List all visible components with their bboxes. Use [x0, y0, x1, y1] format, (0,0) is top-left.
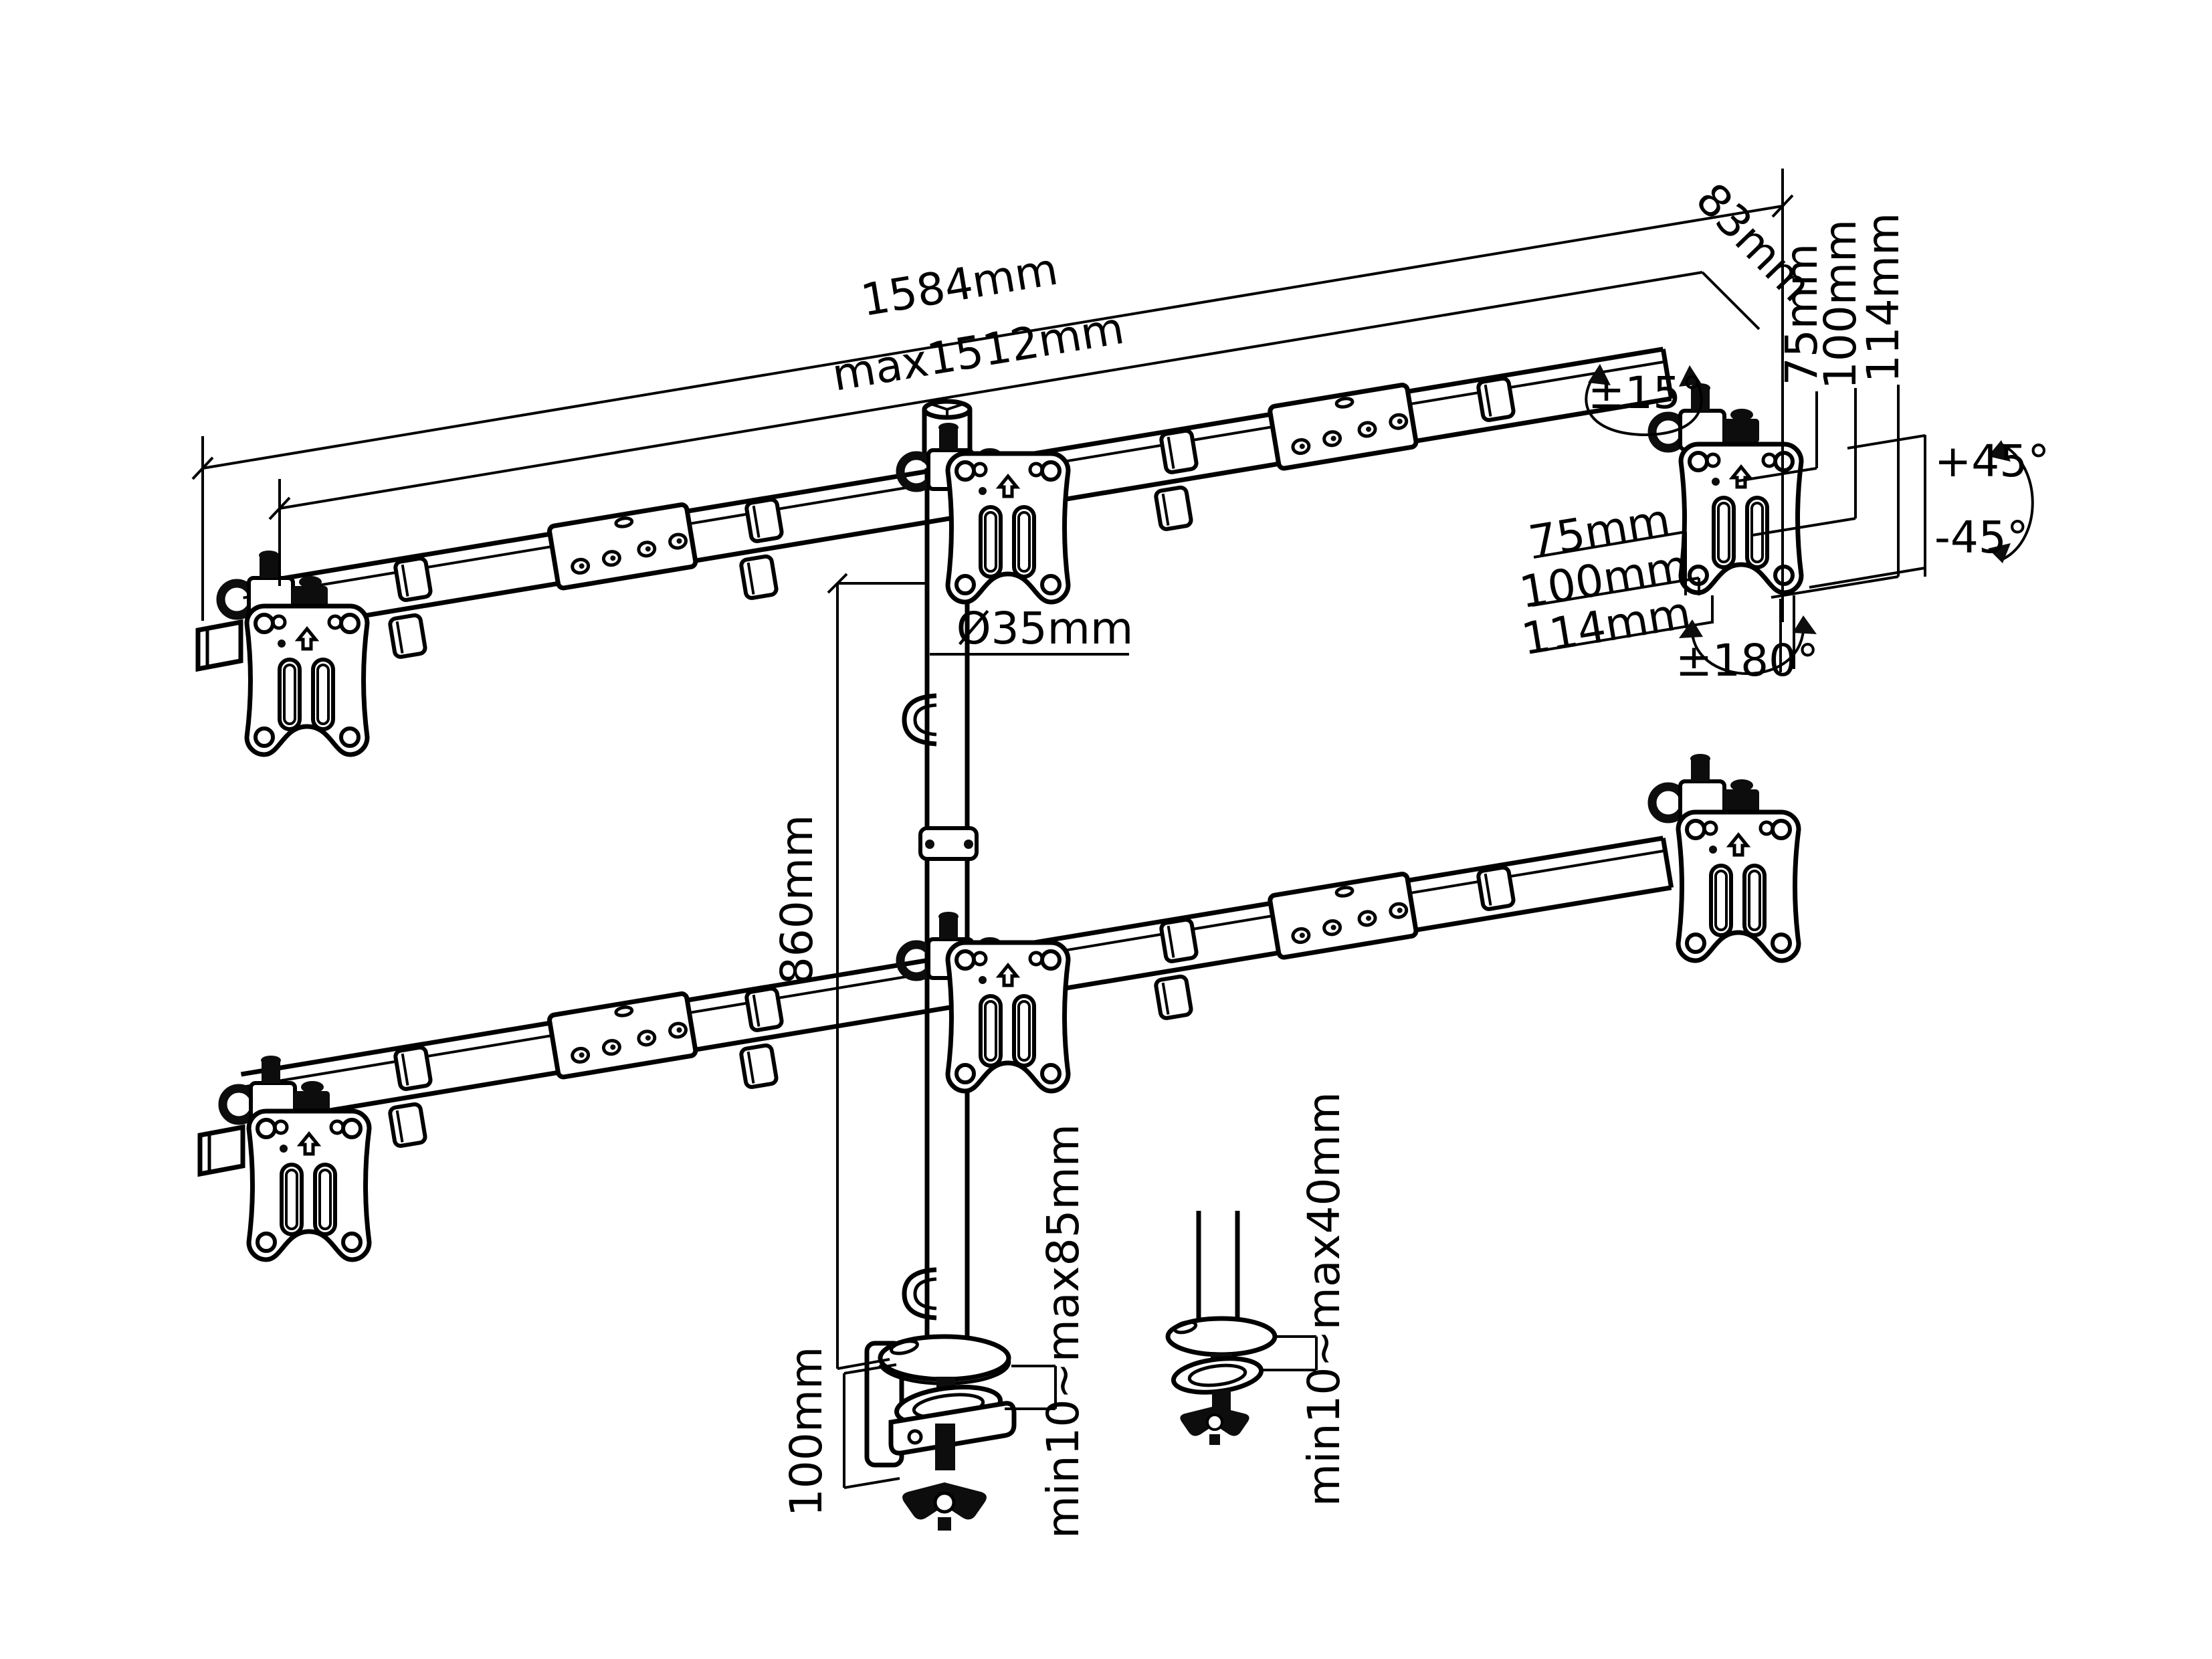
swivel-15-label: ±15°	[1588, 367, 1703, 419]
vesa-plate-bottom-left	[249, 1111, 369, 1260]
vesa-plate-top-left	[247, 606, 367, 755]
vesa-plate-top-center	[948, 454, 1068, 602]
rotation-180-label: ±180°	[1676, 635, 1819, 686]
grommet-mount-detail	[1168, 1211, 1275, 1445]
grommet-desk-range-label: min10~max40mm	[1298, 1092, 1350, 1506]
overall-width-label: 1584mm	[858, 243, 1062, 326]
tilt-down-label: -45°	[1934, 512, 2029, 563]
top-bar-end-cap	[198, 622, 241, 669]
bottom-bar-end-cap	[200, 1127, 243, 1174]
pole-height-label: 860mm	[771, 815, 823, 985]
tilt-up-label: +45°	[1934, 435, 2049, 487]
vesa-plate-bottom-center	[948, 943, 1068, 1091]
clamp-desk-range-label: min10~max85mm	[1037, 1124, 1089, 1539]
technical-drawing-page: 1584mm max1512mm 83mm ±15° 75mm 100mm 11…	[0, 0, 2212, 1659]
vesa-col-114-label: 114mm	[1857, 213, 1909, 383]
clamp-height-label: 100mm	[781, 1347, 832, 1517]
pole-cable-clip	[904, 696, 936, 744]
pole-diameter-label: Ø35mm	[957, 603, 1134, 654]
pole-cable-clip	[904, 1270, 936, 1318]
vesa-plate-bottom-right	[1678, 812, 1799, 961]
monitor-mount-diagram: 1584mm max1512mm 83mm ±15° 75mm 100mm 11…	[0, 0, 2212, 1659]
